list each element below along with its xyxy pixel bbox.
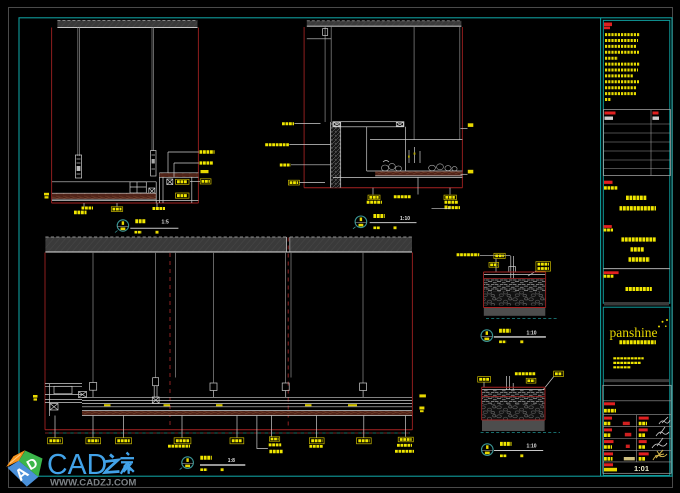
svg-text:panshine: panshine [610, 325, 658, 340]
svg-text:1:01: 1:01 [634, 464, 649, 473]
svg-text:1:10: 1:10 [527, 444, 537, 450]
svg-text:1:10: 1:10 [527, 331, 537, 337]
svg-text:1:10: 1:10 [400, 216, 410, 222]
svg-text:1:5: 1:5 [162, 220, 169, 226]
svg-text:CAD: CAD [47, 449, 107, 481]
svg-text:1:8: 1:8 [228, 458, 235, 464]
svg-text:WWW.CADZJ.COM: WWW.CADZJ.COM [50, 478, 136, 489]
